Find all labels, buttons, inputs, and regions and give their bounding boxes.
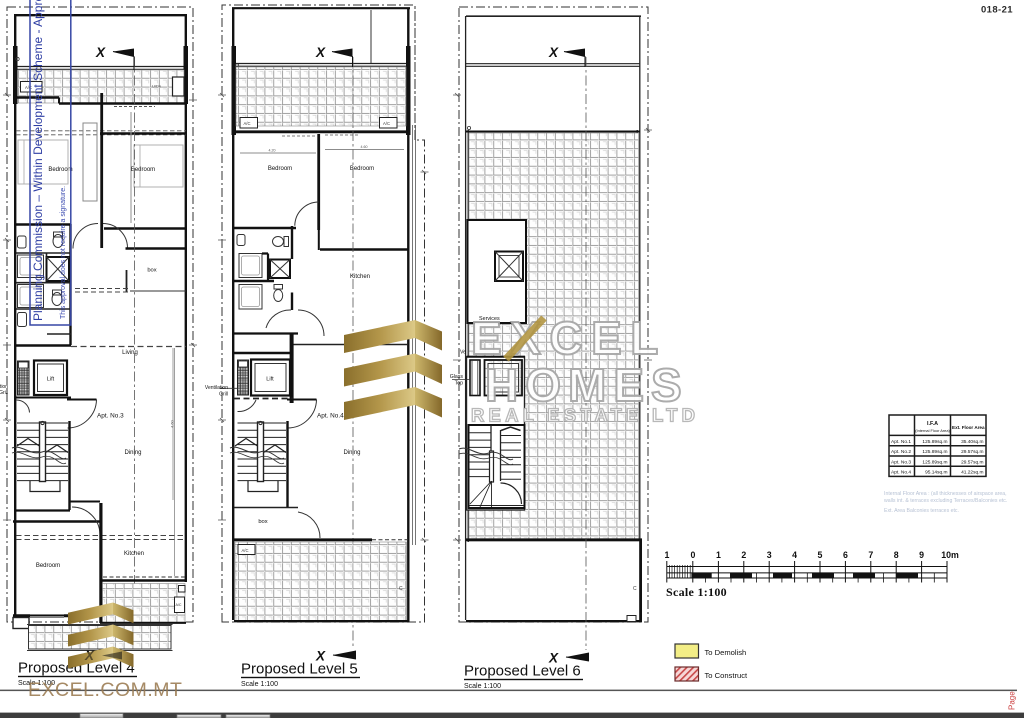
svg-text:7: 7 <box>868 550 873 560</box>
svg-text:A/C: A/C <box>383 121 390 126</box>
svg-text:Apt. No.3: Apt. No.3 <box>891 459 911 465</box>
svg-text:Lift: Lift <box>47 377 55 383</box>
svg-text:walls int. & terraces excludin: walls int. & terraces excluding Terraces… <box>884 498 1007 504</box>
svg-text:X: X <box>95 45 106 60</box>
svg-text:A/C: A/C <box>242 548 249 553</box>
svg-text:Ventilation: Ventilation <box>205 385 228 391</box>
svg-text:Apt. No.4: Apt. No.4 <box>317 413 344 420</box>
svg-text:X: X <box>84 648 95 663</box>
svg-text:29.57sq.m: 29.57sq.m <box>961 449 983 455</box>
svg-text:125.89sq.m: 125.89sq.m <box>922 459 947 465</box>
svg-text:C: C <box>633 586 637 592</box>
svg-text:Apt. No.3: Apt. No.3 <box>97 413 124 420</box>
svg-text:Apt. No.2: Apt. No.2 <box>891 449 911 455</box>
svg-text:X: X <box>315 45 326 60</box>
svg-text:Scale 1:100: Scale 1:100 <box>464 683 501 690</box>
svg-text:A/C: A/C <box>244 121 251 126</box>
svg-text:Dining: Dining <box>343 450 360 456</box>
svg-text:125.89sq.m: 125.89sq.m <box>922 449 947 455</box>
svg-text:Lift: Lift <box>266 377 274 383</box>
svg-text:Grill: Grill <box>219 392 228 398</box>
svg-text:5: 5 <box>818 550 823 560</box>
svg-text:4.60: 4.60 <box>170 419 175 428</box>
svg-text:9: 9 <box>919 550 924 560</box>
svg-text:HOMES: HOMES <box>485 359 689 411</box>
svg-text:Proposed Level 5: Proposed Level 5 <box>241 661 358 678</box>
svg-text:Bedroom: Bedroom <box>48 167 72 173</box>
svg-text:Planning Commission – Within D: Planning Commission – Within Development… <box>31 0 45 321</box>
svg-text:8: 8 <box>894 550 899 560</box>
svg-text:29.57sq.m: 29.57sq.m <box>961 459 983 465</box>
svg-text:018-21: 018-21 <box>981 5 1013 16</box>
svg-text:Bedroom: Bedroom <box>350 166 374 172</box>
svg-text:X: X <box>548 45 559 60</box>
svg-text:35.40sq.m: 35.40sq.m <box>961 439 983 445</box>
svg-text:To Demolish: To Demolish <box>705 648 747 657</box>
svg-text:Scale 1:100: Scale 1:100 <box>241 681 278 688</box>
svg-text:U/Dn: U/Dn <box>152 84 161 89</box>
svg-text:125.89sq.m: 125.89sq.m <box>922 439 947 445</box>
svg-text:Kitchen: Kitchen <box>124 551 144 557</box>
svg-text:4.60: 4.60 <box>361 145 368 149</box>
svg-text:10m: 10m <box>941 550 959 560</box>
svg-text:6: 6 <box>843 550 848 560</box>
svg-text:4: 4 <box>792 550 797 560</box>
svg-text:To Construct: To Construct <box>705 671 749 680</box>
svg-text:Bedroom: Bedroom <box>36 563 60 569</box>
svg-text:box: box <box>258 519 267 525</box>
svg-text:Scale 1:100: Scale 1:100 <box>666 585 727 599</box>
svg-text:C: C <box>399 586 403 592</box>
svg-text:Bedroom: Bedroom <box>268 166 292 172</box>
svg-text:Page: Page <box>1008 691 1017 710</box>
svg-text:Living: Living <box>122 350 138 356</box>
svg-text:box: box <box>147 268 156 274</box>
svg-text:2: 2 <box>741 550 746 560</box>
svg-text:This approval does not require: This approval does not require a signatu… <box>60 186 67 319</box>
svg-text:Ext. Floor Area: Ext. Floor Area <box>952 425 985 430</box>
svg-text:Apt. No.4: Apt. No.4 <box>891 470 911 476</box>
svg-text:Ext. Area Balconies terraces e: Ext. Area Balconies terraces etc. <box>884 508 959 514</box>
svg-text:4.20: 4.20 <box>269 149 276 153</box>
svg-text:41.22sq.m: 41.22sq.m <box>961 470 983 476</box>
svg-text:0: 0 <box>691 550 696 560</box>
svg-text:3: 3 <box>767 550 772 560</box>
svg-text:1: 1 <box>716 550 721 560</box>
svg-text:EXCEL: EXCEL <box>471 312 667 364</box>
svg-text:1: 1 <box>665 550 670 560</box>
svg-text:Dining: Dining <box>124 450 141 456</box>
svg-text:Internal Floor Area : (all thi: Internal Floor Area : (all thicknesses o… <box>884 491 1007 497</box>
svg-text:Proposed Level 6: Proposed Level 6 <box>464 663 581 680</box>
svg-text:I.F.A: I.F.A <box>927 421 938 427</box>
svg-text:(Internal Floor Area): (Internal Floor Area) <box>915 428 950 433</box>
svg-text:REAL ESTATE LTD: REAL ESTATE LTD <box>471 405 699 426</box>
svg-text:EXCEL.COM.MT: EXCEL.COM.MT <box>28 679 182 701</box>
svg-text:Glass: Glass <box>450 374 464 380</box>
svg-text:Top: Top <box>455 381 463 387</box>
svg-text:Ve: Ve <box>460 350 466 356</box>
svg-text:Apt. No.1: Apt. No.1 <box>891 439 911 445</box>
svg-text:A/C: A/C <box>176 603 182 607</box>
svg-text:Grill: Grill <box>0 390 8 396</box>
svg-text:95.14sq.m: 95.14sq.m <box>925 470 947 476</box>
